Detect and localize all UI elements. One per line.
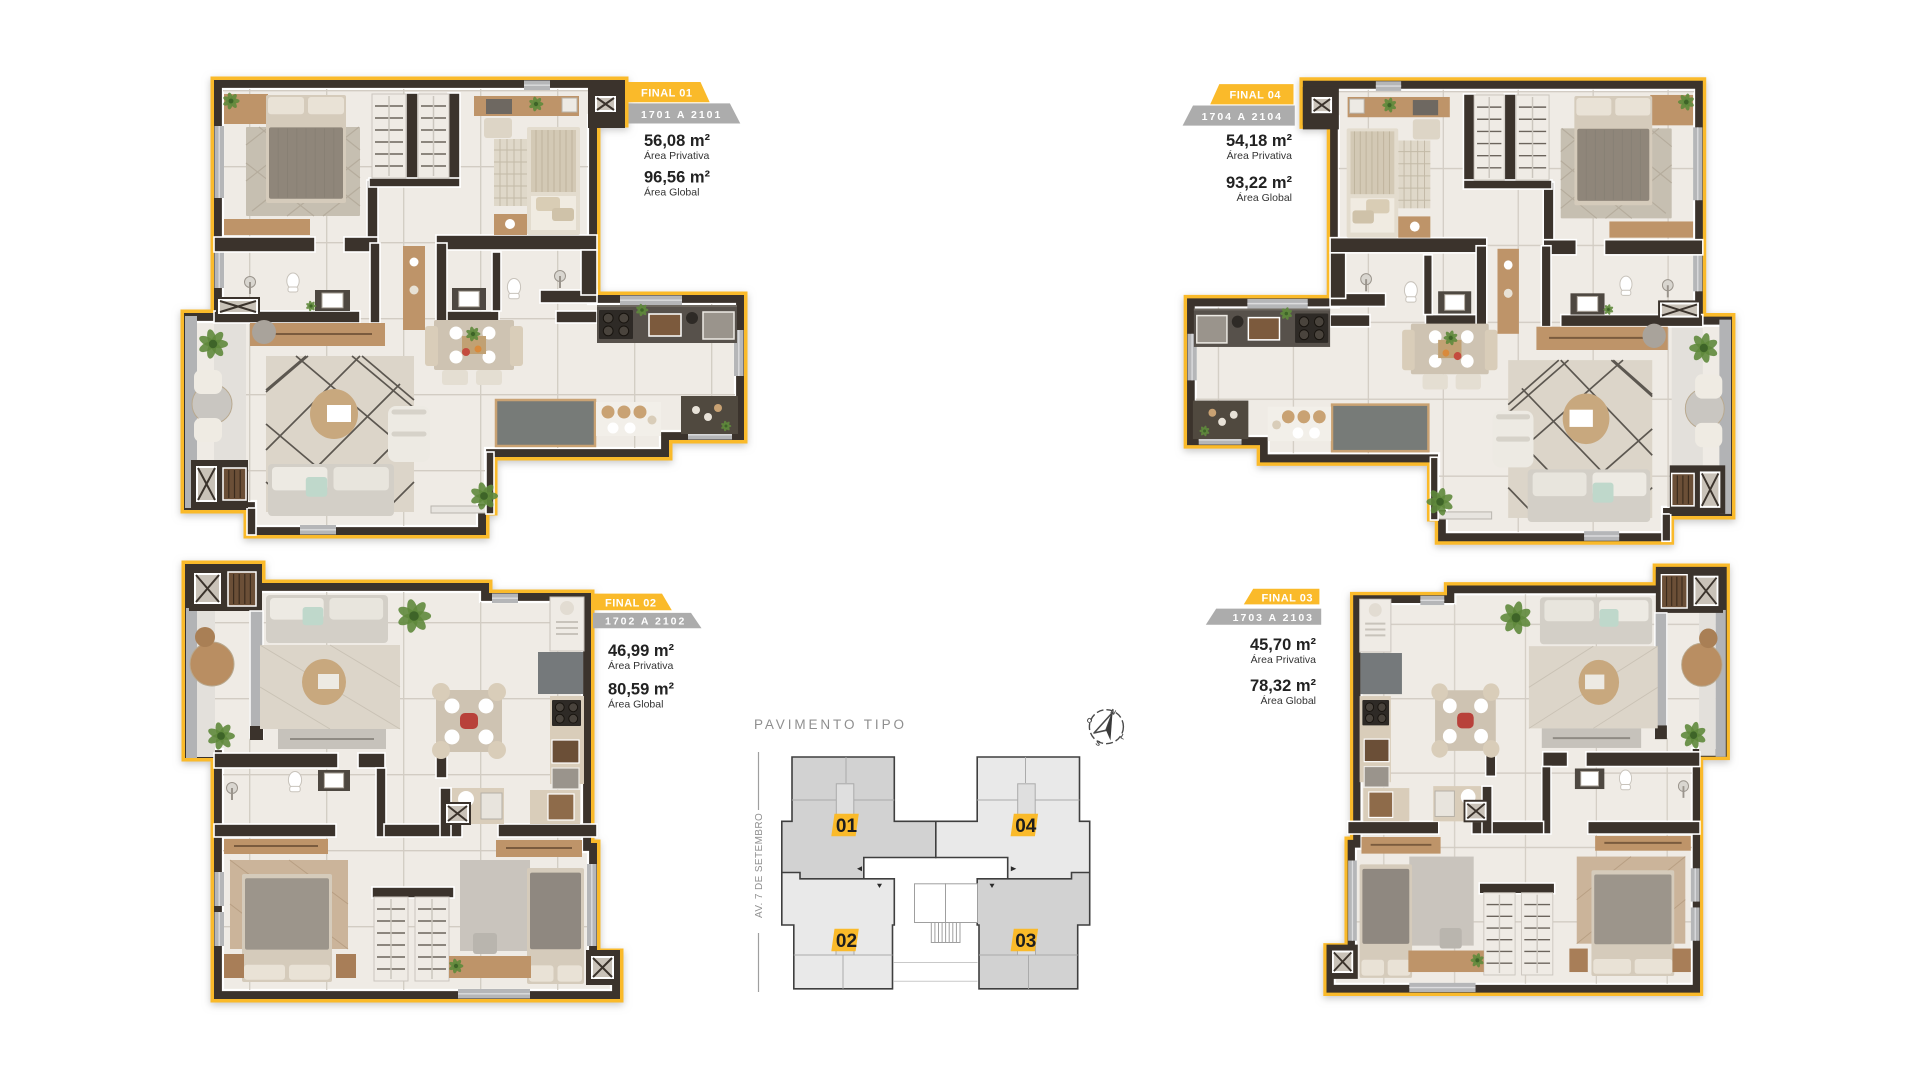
svg-text:Área Privativa: Área Privativa bbox=[644, 149, 710, 162]
svg-text:Área Privativa: Área Privativa bbox=[1251, 653, 1317, 666]
svg-text:1701 A 2101: 1701 A 2101 bbox=[641, 109, 722, 121]
svg-text:FINAL 01: FINAL 01 bbox=[641, 88, 692, 100]
svg-text:93,22 m²: 93,22 m² bbox=[1226, 174, 1293, 192]
svg-text:AV. 7 DE SETEMBRO: AV. 7 DE SETEMBRO bbox=[754, 813, 765, 918]
svg-text:54,18 m²: 54,18 m² bbox=[1226, 132, 1293, 150]
svg-text:1702 A 2102: 1702 A 2102 bbox=[605, 616, 686, 628]
svg-text:Área Global: Área Global bbox=[608, 698, 663, 711]
svg-text:96,56 m²: 96,56 m² bbox=[644, 169, 711, 187]
svg-text:45,70 m²: 45,70 m² bbox=[1250, 636, 1317, 654]
svg-text:Área Global: Área Global bbox=[644, 186, 699, 199]
svg-text:Área Global: Área Global bbox=[1237, 191, 1292, 204]
svg-text:04: 04 bbox=[1015, 816, 1037, 837]
svg-text:80,59 m²: 80,59 m² bbox=[608, 681, 675, 699]
svg-text:Área Privativa: Área Privativa bbox=[608, 659, 674, 672]
svg-text:FINAL 04: FINAL 04 bbox=[1230, 90, 1282, 102]
svg-text:1704 A 2104: 1704 A 2104 bbox=[1202, 111, 1283, 123]
svg-text:03: 03 bbox=[1015, 931, 1036, 952]
svg-text:56,08 m²: 56,08 m² bbox=[644, 132, 711, 150]
svg-text:01: 01 bbox=[836, 816, 858, 837]
svg-text:Área Global: Área Global bbox=[1261, 694, 1316, 707]
svg-text:02: 02 bbox=[836, 931, 857, 952]
svg-text:PAVIMENTO TIPO: PAVIMENTO TIPO bbox=[754, 717, 907, 732]
svg-text:FINAL 03: FINAL 03 bbox=[1262, 593, 1313, 605]
svg-text:46,99 m²: 46,99 m² bbox=[608, 642, 675, 660]
svg-text:FINAL 02: FINAL 02 bbox=[605, 598, 656, 610]
svg-text:Área Privativa: Área Privativa bbox=[1227, 149, 1293, 162]
svg-text:1703 A 2103: 1703 A 2103 bbox=[1233, 612, 1314, 624]
svg-text:78,32 m²: 78,32 m² bbox=[1250, 677, 1317, 695]
